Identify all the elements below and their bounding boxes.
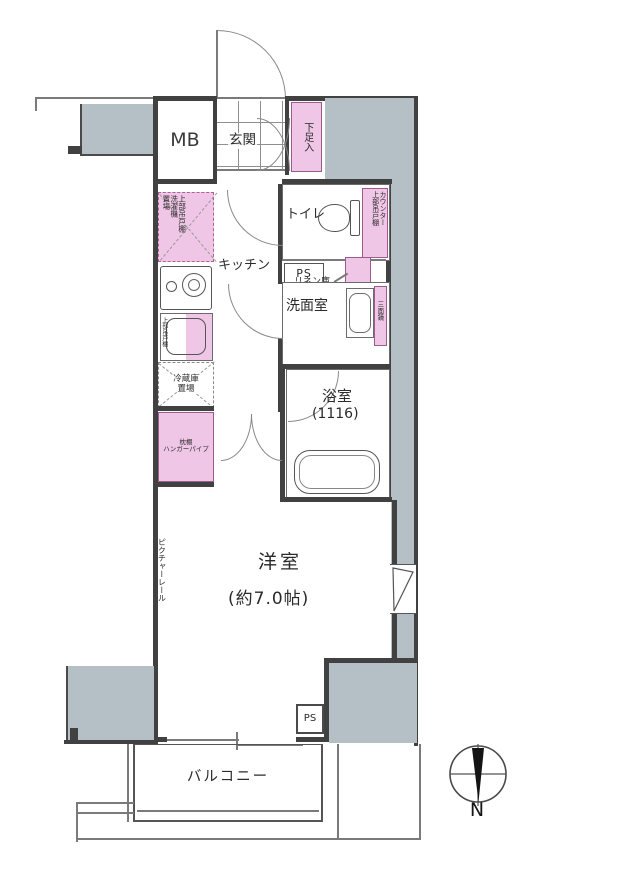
neighbor-rail-left-edge bbox=[76, 802, 78, 842]
mirror-cabinet: 三面鏡 bbox=[374, 286, 387, 346]
bedroom-door-arc-right bbox=[251, 414, 282, 461]
entrance-door-arc bbox=[217, 30, 286, 99]
washroom-label: 洗面室 bbox=[286, 298, 328, 314]
balcony-inner-rail-line bbox=[137, 810, 319, 812]
wall-bath-bottom bbox=[282, 497, 392, 502]
laundry-label: 上部吊戸棚 洗濯機 置場 bbox=[162, 195, 186, 259]
neighbor-block-notch bbox=[68, 146, 82, 154]
shoe-box-label: 下足入 bbox=[301, 122, 312, 152]
ps-bottom-label: PS bbox=[304, 713, 316, 725]
toilet-bowl-icon bbox=[318, 204, 350, 232]
bathroom-label: 浴室 bbox=[322, 388, 352, 405]
washroom-door-arc bbox=[228, 284, 283, 339]
wall-closet-bottom bbox=[153, 482, 214, 487]
closet-label: 枕棚 ハンガーパイプ bbox=[158, 432, 214, 460]
neighbor-block-top-left bbox=[80, 104, 156, 156]
mirror-label: 三面鏡 bbox=[376, 301, 383, 321]
genkan-label: 玄関 bbox=[228, 133, 257, 149]
wall-bedroom-right-lower bbox=[392, 614, 397, 660]
outline-br-right bbox=[419, 744, 421, 840]
sink-shelf-label: 上部吊戸棚 bbox=[161, 317, 167, 359]
sliding-window-line-1 bbox=[167, 739, 239, 741]
floor-plan: MB 玄関 下足入 トイレ カウンター 上部吊戸棚 PS リネン庫 洗面室 三面… bbox=[0, 0, 623, 882]
mb-room-label: MB bbox=[158, 128, 212, 154]
wall-corridor-right-lower bbox=[278, 338, 282, 412]
neighbor-rail-line-1 bbox=[76, 802, 134, 804]
bathroom-size-label: (1116) bbox=[312, 406, 359, 422]
bedroom-label: 洋室 bbox=[258, 552, 302, 574]
window-open-flap-icon bbox=[390, 565, 416, 615]
wall-bedroom-right-upper bbox=[392, 500, 397, 564]
shoe-box: 下足入 bbox=[291, 102, 322, 172]
outline-br-left bbox=[337, 744, 339, 840]
corridor-entry-door-arc bbox=[227, 190, 283, 246]
vanity-sink bbox=[349, 293, 371, 333]
wall-corridor-bottom bbox=[158, 406, 214, 411]
toilet-tank-icon bbox=[350, 200, 360, 236]
exterior-block-bottom-right bbox=[329, 663, 417, 743]
wall-mb-bottom bbox=[153, 179, 217, 184]
kitchen-label: キッチン bbox=[218, 259, 270, 274]
stove-burner-small bbox=[166, 281, 177, 292]
bedroom-door-arc-left bbox=[221, 414, 252, 461]
neighbor-rail-line-2 bbox=[76, 812, 134, 814]
bathtub-inner-line bbox=[299, 455, 375, 489]
outer-wall-right bbox=[414, 96, 418, 746]
neighbor-block-bottom-left bbox=[66, 666, 154, 744]
linen-cabinet bbox=[345, 257, 371, 283]
stove-burner-large-inner bbox=[188, 279, 200, 291]
balcony-partition-line bbox=[127, 744, 129, 822]
balcony-label: バルコニー bbox=[168, 768, 288, 786]
bedroom-window bbox=[390, 564, 416, 614]
bedroom-size-label: (約7.0帖) bbox=[228, 590, 309, 610]
compass-north-label: N bbox=[462, 800, 492, 822]
ps-bottom-box: PS bbox=[296, 704, 324, 734]
outline-bottom-long bbox=[76, 838, 338, 840]
fridge-label: 冷蔵庫 置場 bbox=[158, 370, 214, 400]
top-boundary-tick bbox=[35, 97, 37, 111]
kitchen-sink bbox=[166, 318, 206, 355]
picture-rail-label: ピクチャーレール bbox=[157, 538, 165, 624]
outline-br-bottom bbox=[337, 838, 421, 840]
wall-bedroom-bottom-right bbox=[296, 737, 328, 742]
wall-top-mb bbox=[153, 96, 217, 101]
toilet-counter-shelf: カウンター 上部吊戸棚 bbox=[362, 188, 388, 258]
toilet-counter-shelf-label: カウンター 上部吊戸棚 bbox=[371, 191, 386, 257]
